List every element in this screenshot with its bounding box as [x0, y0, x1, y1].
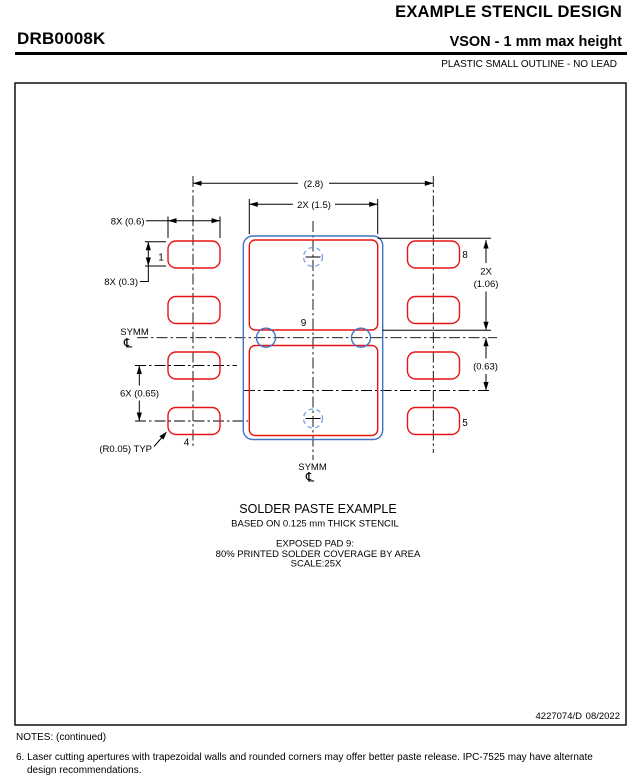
pin-label-5: 5 [462, 418, 468, 429]
centerline-symbol-bottom: ℄ [305, 470, 315, 485]
dim-pad-height-label: 8X (0.3) [104, 277, 138, 288]
pad-aperture-pin2 [168, 297, 220, 324]
epad-paste-aperture-top [249, 240, 377, 330]
stamp-drawing-number: 4227074/D [536, 711, 583, 722]
dim-paste-height-label-1: 2X [480, 267, 492, 278]
dim-paste-height-label-2: (1.06) [474, 279, 499, 290]
dim-corner-radius-label: (R0.05) TYP [99, 444, 152, 455]
centerlines [135, 176, 497, 460]
pin-label-8: 8 [462, 250, 468, 261]
dim-pitch-label: 6X (0.65) [120, 389, 159, 400]
dim-pad-width: 8X (0.6) [111, 217, 220, 239]
note-6: 6. Laser cutting apertures with trapezoi… [16, 752, 608, 777]
stencil-drawing: (2.8) 2X (1.5) 8X (0.6) 8X (0.3) [0, 0, 631, 783]
dim-paste-width-label: 2X (1.5) [297, 200, 331, 211]
notes-heading: NOTES: (continued) [16, 732, 106, 743]
dim-paste-height: 2X (1.06) [378, 238, 499, 330]
caption-exposed-pad: EXPOSED PAD 9: [276, 539, 354, 550]
document-page: EXAMPLE STENCIL DESIGN DRB0008K VSON - 1… [0, 0, 631, 783]
dim-pitch: 6X (0.65) [120, 366, 159, 422]
centerline-symbol-left: ℄ [123, 336, 133, 351]
dim-paste-offset: (0.63) [473, 338, 498, 391]
dim-paste-width: 2X (1.5) [249, 199, 377, 234]
pin-label-1: 1 [158, 253, 164, 264]
dim-pad-width-label: 8X (0.6) [111, 217, 145, 228]
pin-label-9: 9 [301, 318, 307, 329]
caption-scale: SCALE:25X [291, 559, 342, 570]
pad-aperture-pin1 [168, 241, 220, 268]
note-6-text: Laser cutting apertures with trapezoidal… [24, 752, 592, 776]
dim-pad-height: 8X (0.3) [104, 242, 166, 288]
pin-label-4: 4 [184, 438, 190, 449]
stamp-date: 08/2022 [586, 711, 620, 722]
caption-stencil-note: BASED ON 0.125 mm THICK STENCIL [231, 519, 399, 530]
dim-corner-radius: (R0.05) TYP [99, 432, 167, 456]
caption-title: SOLDER PASTE EXAMPLE [239, 502, 396, 516]
dim-paste-offset-label: (0.63) [473, 362, 498, 373]
dim-overall-width: (2.8) [193, 179, 433, 190]
drawing-caption: SOLDER PASTE EXAMPLE BASED ON 0.125 mm T… [216, 502, 421, 570]
dim-overall-width-label: (2.8) [304, 179, 324, 190]
